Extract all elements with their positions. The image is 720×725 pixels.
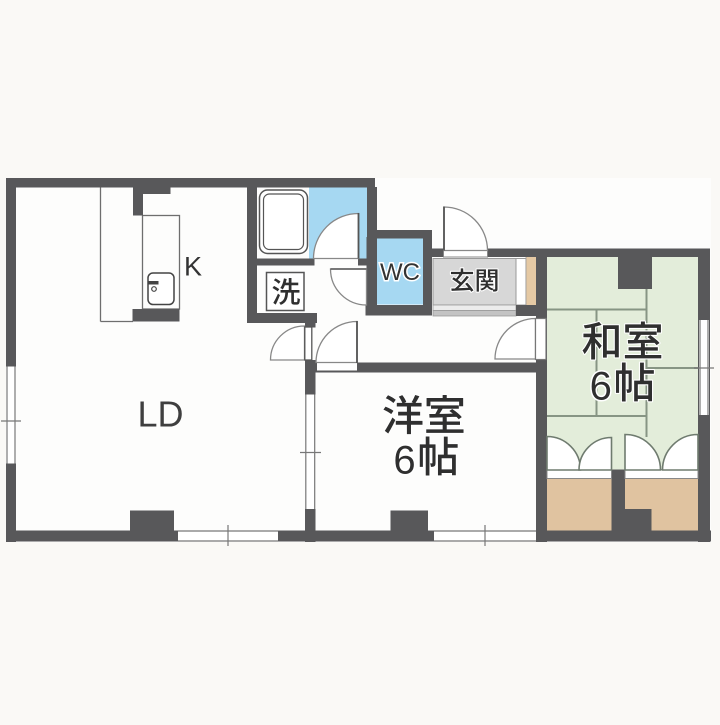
svg-text:K: K xyxy=(184,252,202,282)
svg-text:6: 6 xyxy=(590,365,612,409)
svg-text:6: 6 xyxy=(393,439,415,483)
svg-text:LD: LD xyxy=(137,394,183,435)
svg-text:WC: WC xyxy=(380,259,420,286)
